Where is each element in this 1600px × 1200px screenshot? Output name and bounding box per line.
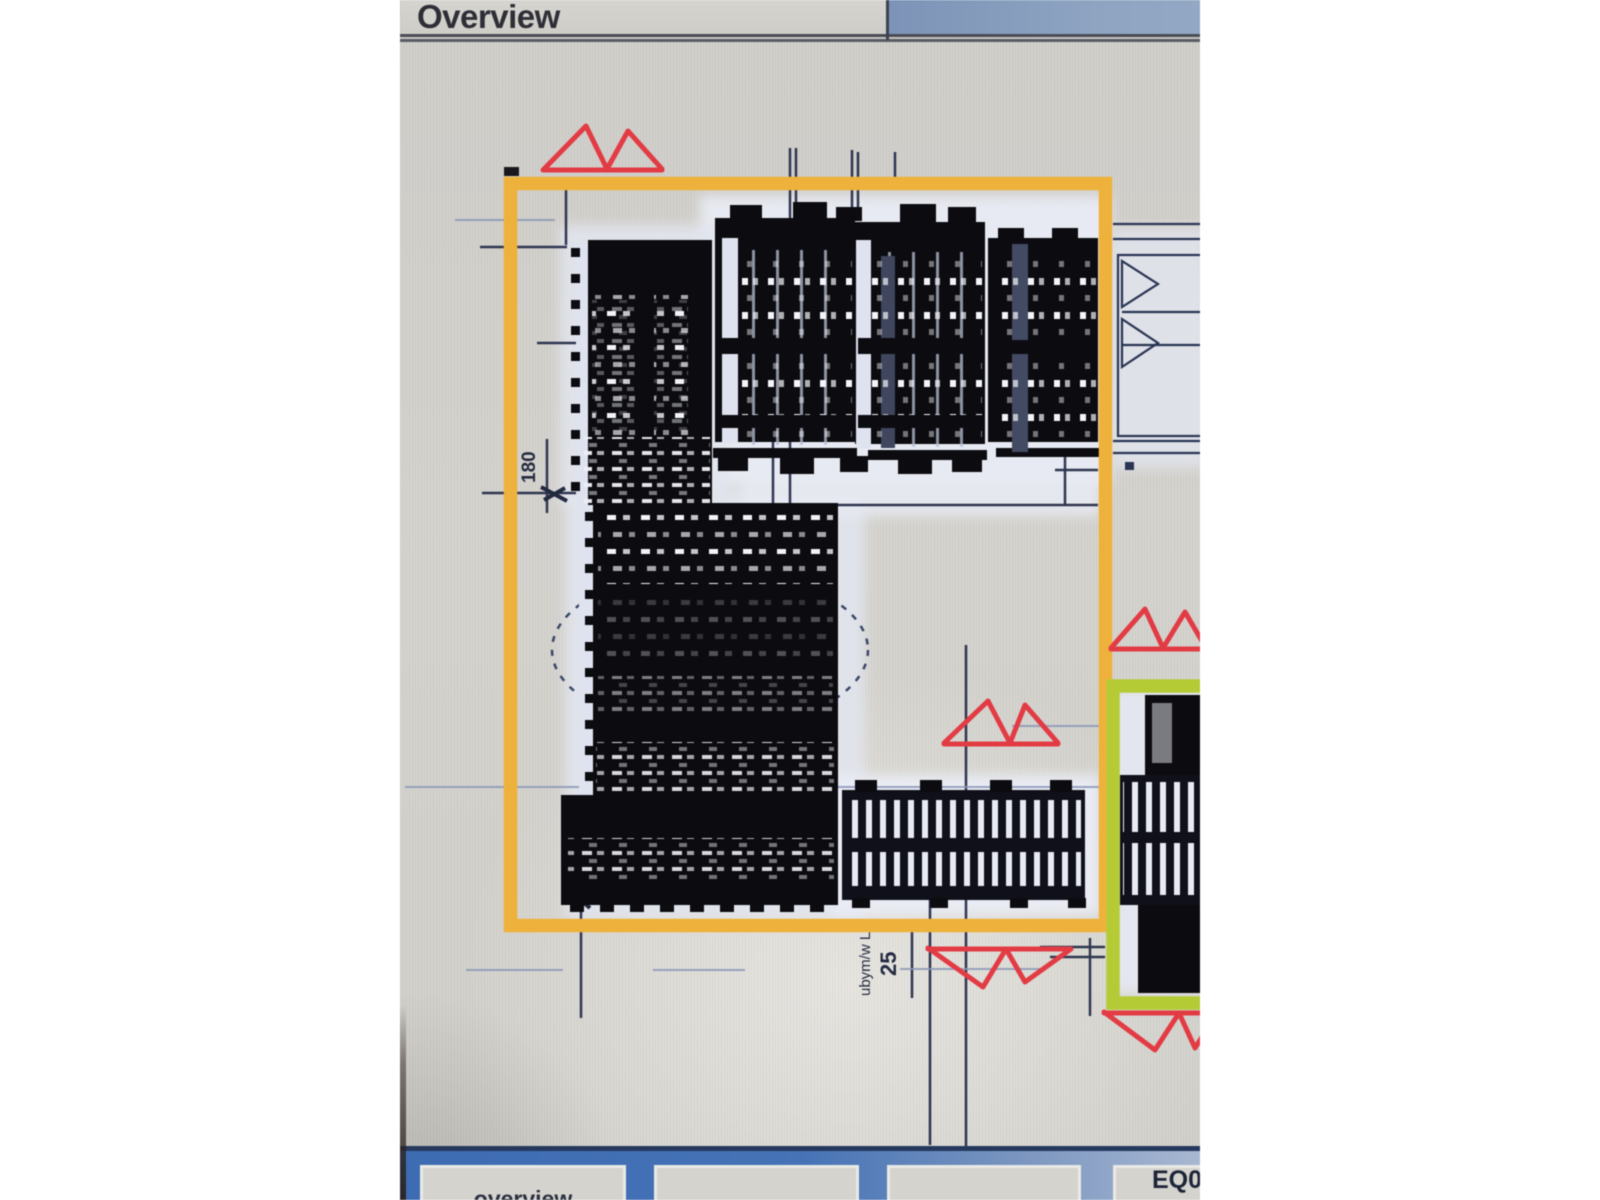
svg-text:25: 25 — [876, 952, 901, 976]
svg-text:180: 180 — [519, 451, 540, 483]
svg-text:ubym/w L: ubym/w L — [857, 932, 874, 996]
